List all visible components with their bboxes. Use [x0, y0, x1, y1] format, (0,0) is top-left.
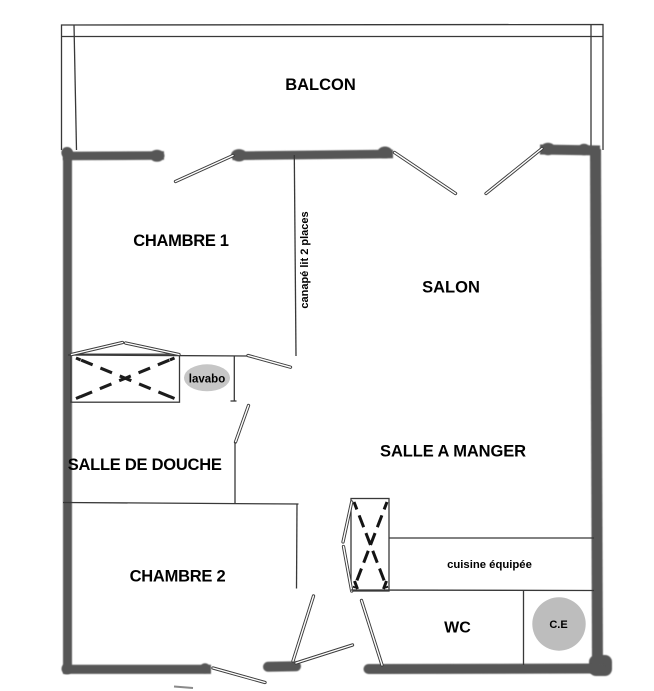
svg-text:WC: WC — [444, 619, 471, 636]
svg-text:lavabo: lavabo — [189, 373, 225, 385]
svg-text:SALLE DE DOUCHE: SALLE DE DOUCHE — [68, 456, 222, 474]
svg-text:canapé lit 2 places: canapé lit 2 places — [299, 211, 311, 308]
svg-text:CHAMBRE 2: CHAMBRE 2 — [130, 568, 226, 586]
svg-text:BALCON: BALCON — [285, 76, 356, 94]
svg-text:cuisine équipée: cuisine équipée — [447, 559, 532, 571]
svg-text:C.E: C.E — [549, 619, 567, 631]
svg-text:SALON: SALON — [422, 279, 480, 297]
svg-text:SALLE A MANGER: SALLE A MANGER — [380, 443, 526, 461]
svg-text:CHAMBRE 1: CHAMBRE 1 — [133, 232, 229, 250]
